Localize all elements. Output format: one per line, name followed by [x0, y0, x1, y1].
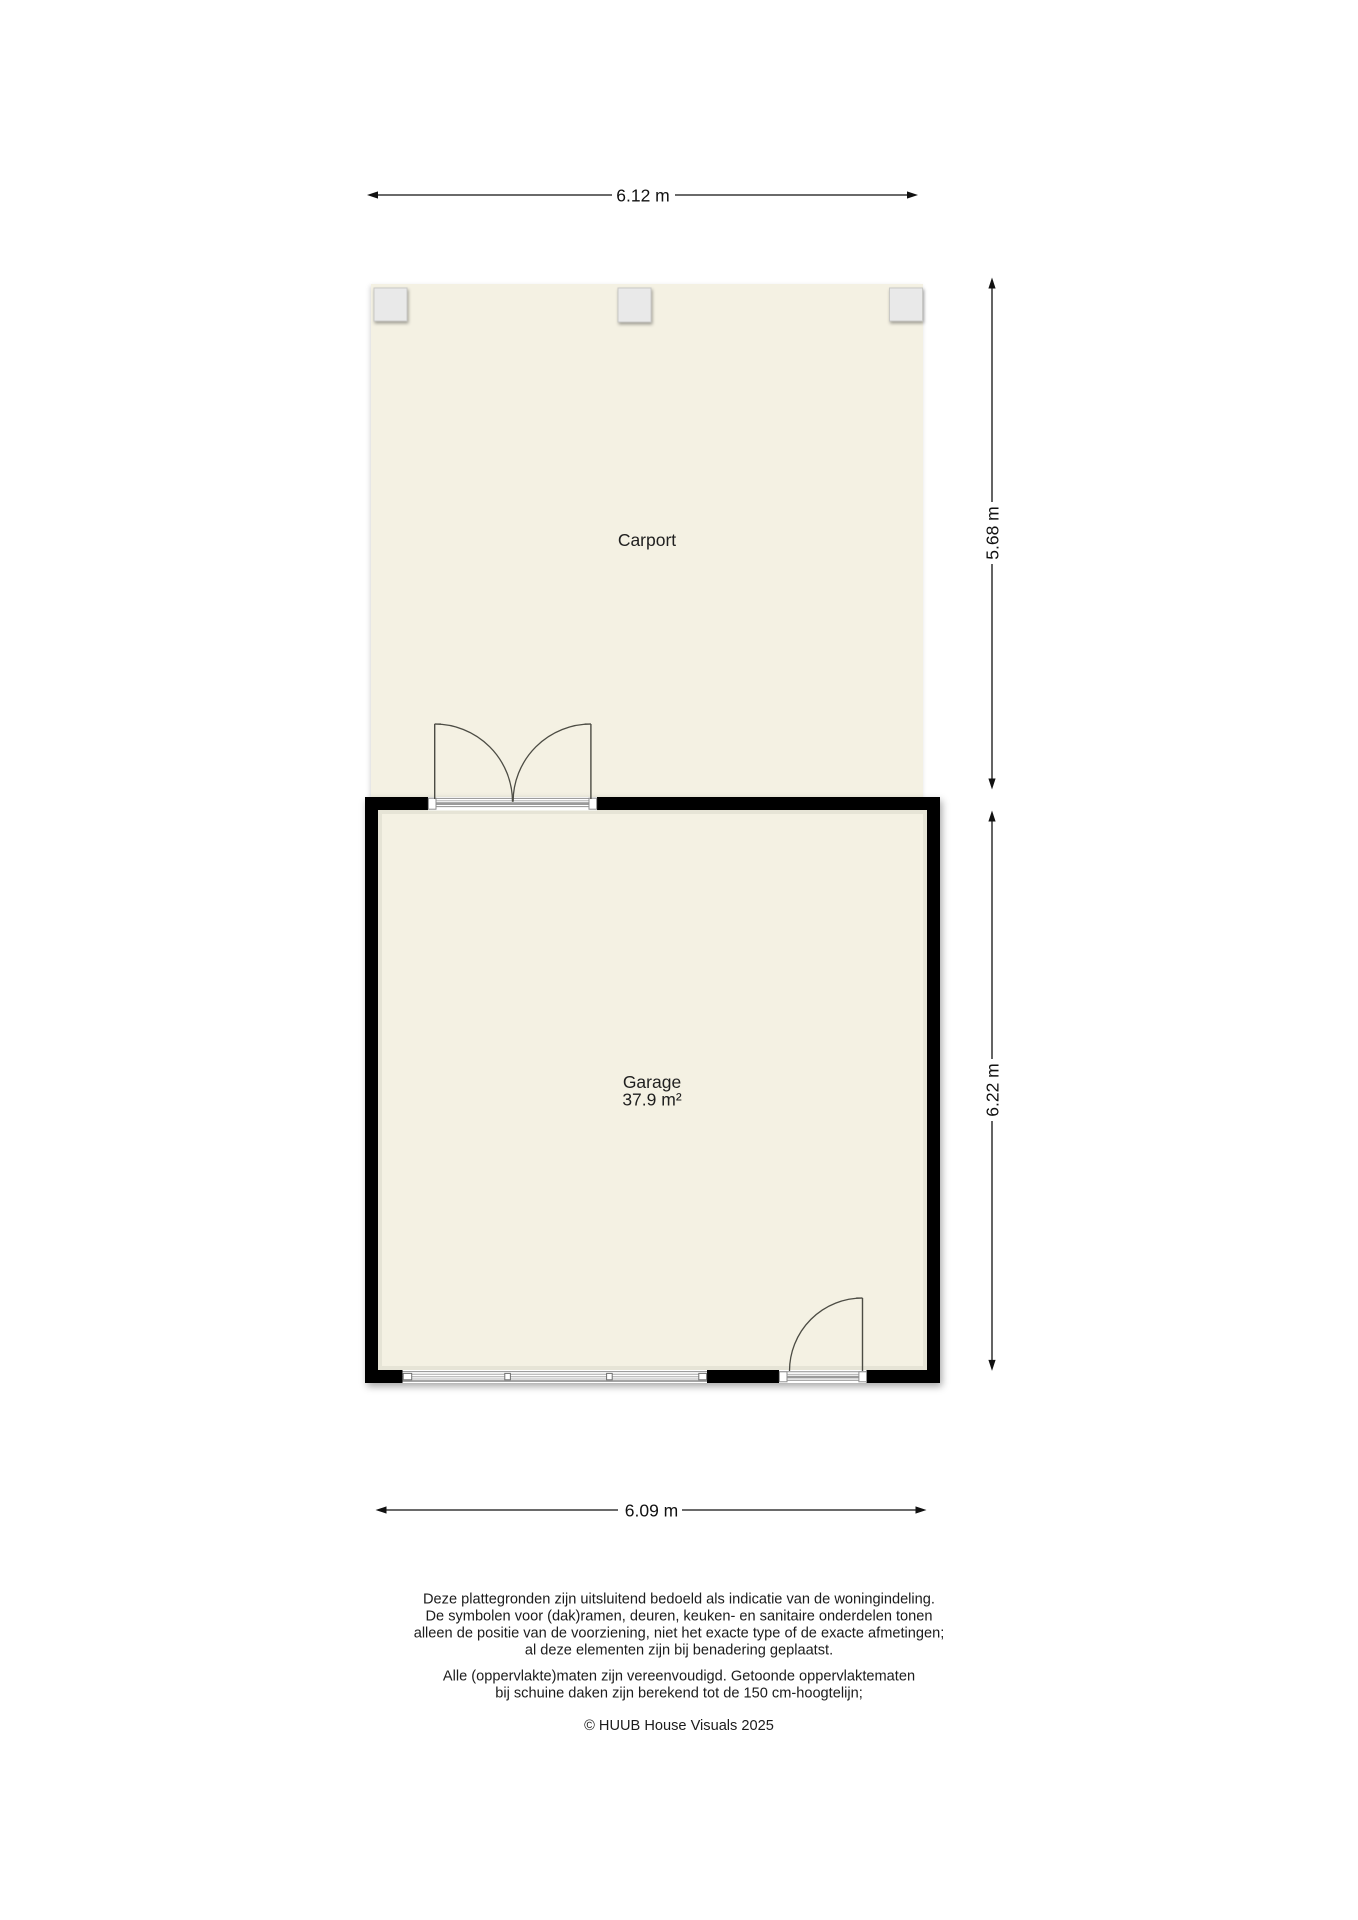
svg-text:al deze elementen zijn bij ben: al deze elementen zijn bij benadering ge…	[525, 1642, 833, 1658]
svg-text:5.68 m: 5.68 m	[982, 506, 1002, 560]
svg-text:6.09 m: 6.09 m	[625, 1500, 679, 1520]
svg-text:Carport: Carport	[618, 530, 676, 550]
svg-text:De symbolen voor (dak)ramen, d: De symbolen voor (dak)ramen, deuren, keu…	[425, 1608, 932, 1624]
svg-text:alleen de positie van de voorz: alleen de positie van de voorziening, ni…	[414, 1625, 945, 1641]
svg-text:6.22 m: 6.22 m	[982, 1063, 1002, 1117]
svg-text:bij schuine daken zijn bereken: bij schuine daken zijn berekend tot de 1…	[495, 1686, 863, 1702]
svg-text:Deze plattegronden zijn uitslu: Deze plattegronden zijn uitsluitend bedo…	[423, 1591, 935, 1607]
svg-text:6.12 m: 6.12 m	[616, 185, 670, 205]
svg-text:Alle (oppervlakte)maten zijn v: Alle (oppervlakte)maten zijn vereenvoudi…	[443, 1669, 915, 1685]
svg-text:37.9 m²: 37.9 m²	[622, 1090, 681, 1110]
svg-text:© HUUB House Visuals 2025: © HUUB House Visuals 2025	[584, 1718, 774, 1734]
